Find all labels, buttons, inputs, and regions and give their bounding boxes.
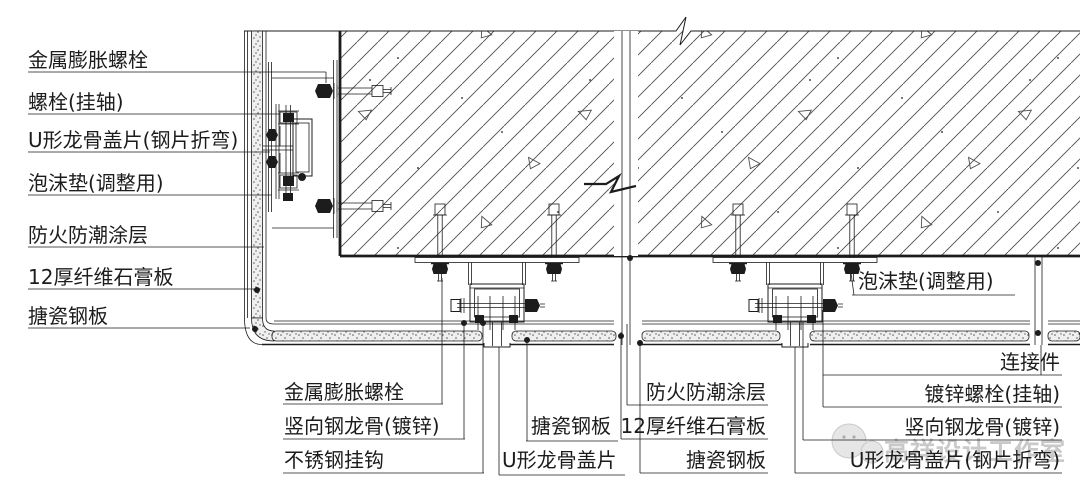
callout-fireproof-coating: 防火防潮涂层 <box>28 223 148 247</box>
callout-connector: 连接件 <box>1000 350 1060 374</box>
concrete-slab <box>244 17 1080 256</box>
drawing-canvas: 高祥设计工作室 金属膨胀螺栓 螺栓(挂轴) U形龙骨盖片(钢片折弯) <box>0 0 1080 498</box>
callouts-bottom-left: 金属膨胀螺栓 竖向钢龙骨(镀锌) 不锈钢挂钩 <box>284 380 440 472</box>
callout-u-keel-cover-bent: U形龙骨盖片(钢片折弯) <box>28 128 238 152</box>
construction-detail-drawing: 高祥设计工作室 金属膨胀螺栓 螺栓(挂轴) U形龙骨盖片(钢片折弯) <box>0 0 1080 498</box>
callout-vertical-steel-keel-2: 竖向钢龙骨(镀锌) <box>904 415 1060 439</box>
foam-pad-marker <box>298 173 306 181</box>
callout-fiber-gypsum-board: 12厚纤维石膏板 <box>28 265 173 289</box>
callouts-bottom-mid: 搪瓷钢板 U形龙骨盖片 <box>502 414 617 472</box>
callout-stainless-hook: 不锈钢挂钩 <box>284 448 384 472</box>
leader-lines-bottom-left <box>283 278 486 473</box>
callout-vertical-steel-keel: 竖向钢龙骨(镀锌) <box>284 414 440 438</box>
callout-foam-pad-adjust: 泡沫垫(调整用) <box>28 171 164 195</box>
keel-cover-plate <box>293 119 312 176</box>
callout-u-keel-cover-bent-2: U形龙骨盖片(钢片折弯) <box>850 448 1060 472</box>
callouts-left: 金属膨胀螺栓 螺栓(挂轴) U形龙骨盖片(钢片折弯) 泡沫垫(调整用) 防火防潮… <box>28 48 238 328</box>
right-joint <box>1035 257 1042 345</box>
callouts-bottom-center: 防火防潮涂层 12厚纤维石膏板 搪瓷钢板 <box>621 380 766 472</box>
callout-fiber-gypsum-board-2: 12厚纤维石膏板 <box>621 414 766 438</box>
callout-u-keel-cover: U形龙骨盖片 <box>502 448 617 472</box>
callout-galvanized-bolt: 镀锌螺栓(挂轴) <box>924 382 1060 406</box>
callout-metal-expansion-bolt-2: 金属膨胀螺栓 <box>284 380 404 404</box>
callout-foam-pad-adjust-2: 泡沫垫(调整用) <box>858 269 994 293</box>
callout-fireproof-coating-2: 防火防潮涂层 <box>646 380 766 404</box>
callouts-bottom-right: 连接件 镀锌螺栓(挂轴) 竖向钢龙骨(镀锌) U形龙骨盖片(钢片折弯) <box>850 350 1060 472</box>
callout-enamel-steel-plate: 搪瓷钢板 <box>28 304 108 328</box>
ceiling-layers <box>262 321 1080 345</box>
callout-bolt-hanging-shaft: 螺栓(挂轴) <box>28 90 124 114</box>
callout-enamel-steel-plate-2: 搪瓷钢板 <box>531 414 611 438</box>
callout-enamel-steel-plate-3: 搪瓷钢板 <box>686 448 766 472</box>
callout-metal-expansion-bolt: 金属膨胀螺栓 <box>28 48 148 72</box>
